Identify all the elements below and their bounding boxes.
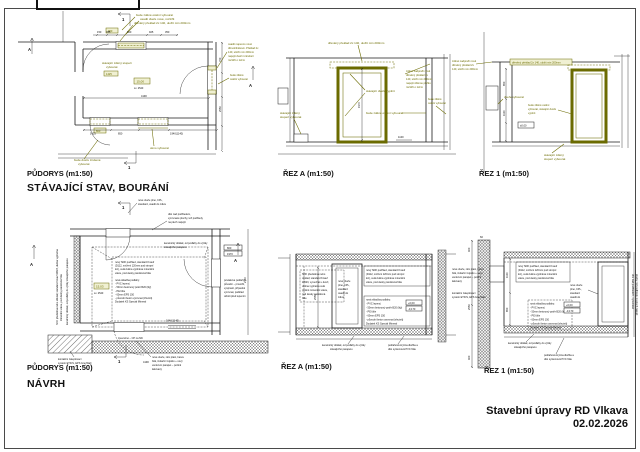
floor-spec-block: nová skladba podlahy: - PVC lepený - 50m… <box>528 300 580 330</box>
svg-text:sv. 2540: sv. 2540 <box>134 87 144 90</box>
svg-text:vatou, pod desky parotěsná fól: vatou, pod desky parotěsná fólie <box>115 272 152 275</box>
svg-text:standard: standard <box>570 292 580 295</box>
svg-text:vyrovnané plochy, též podhledy: vyrovnané plochy, též podhledy <box>168 217 204 220</box>
svg-text:rozšířit o 12cm: rozšířit o 12cm <box>228 58 245 62</box>
svg-text:dřevěný překlad 2x: dřevěný překlad 2x <box>452 63 475 67</box>
svg-text:standard: standard <box>338 288 348 291</box>
svg-text:15,00: 15,00 <box>137 80 145 84</box>
svg-text:- 50mm betonový potěr B20 (lit: - 50mm betonový potěr B20 (litý) <box>115 286 151 289</box>
drawing-sheet: 1 900 bude zděné ostění vybourat osadit … <box>0 0 640 452</box>
svg-text:1970: 1970 <box>227 252 233 256</box>
svg-text:dutina vyplněna celá: dutina vyplněna celá <box>302 285 325 288</box>
svg-text:800: 800 <box>227 246 232 250</box>
svg-text:Dodatek KS Special Mineral: Dodatek KS Special Mineral <box>115 301 147 304</box>
dim-interior: 4190 <box>83 94 210 99</box>
door-new: nové dveře plné, CPL, standard osadit do… <box>332 264 362 328</box>
svg-text:(D112, snížení 120mm pod strop: (D112, snížení 120mm pod stropní <box>366 273 405 276</box>
annotation-right-rotated: dtto nad podhledem, vyrovnané plochy, té… <box>631 274 638 316</box>
svg-text:stupeň vybourat: stupeň vybourat <box>280 115 302 119</box>
svg-text:- původní beton vyrovnat (zhut: - původní beton vyrovnat (zhutnit) <box>530 323 567 326</box>
sdk-block: nový SDK podhled, standard Knauf (D112, … <box>516 262 570 282</box>
heading-proposal: NÁVRH <box>27 378 65 390</box>
svg-text:(D112, snížení 120mm pod strop: (D112, snížení 120mm pod stropní <box>115 265 154 268</box>
annotation-left: zděné nadpraží nově dřevěný překlad 2x 1… <box>452 59 492 71</box>
svg-text:- 50mm betonový potěr B20 (lit: - 50mm betonový potěr B20 (litý) <box>366 307 402 310</box>
drawing-existing-section-a: 1970 dřevěný překlad 2x 140, uložit min … <box>278 30 458 180</box>
svg-text:150: 150 <box>97 30 102 34</box>
svg-text:nové dveře, rám plast, barva: nové dveře, rám plast, barva <box>452 268 484 271</box>
svg-text:±0,00: ±0,00 <box>520 124 527 128</box>
svg-text:kci), celá dutina vyplněna min: kci), celá dutina vyplněna minerální <box>366 277 405 280</box>
svg-text:2550: 2550 <box>218 106 222 112</box>
svg-text:stávající dveře vyplnit: stávající dveře vyplnit <box>366 89 395 93</box>
door-demolition <box>568 65 610 142</box>
svg-text:na plech napojit: na plech napojit <box>168 221 186 224</box>
svg-text:nové dveře, rám plast, barva: nové dveře, rám plast, barva <box>152 356 184 359</box>
svg-text:- 50mm betonový potěr B20 (lit: - 50mm betonový potěr B20 (litý) <box>530 311 566 314</box>
svg-text:400: 400 <box>467 355 471 360</box>
svg-text:SDK předstěna nebo obklad; sta: SDK předstěna nebo obklad; standard Knau… <box>56 249 59 325</box>
svg-text:dtto systémová PVC fólie: dtto systémová PVC fólie <box>388 348 417 351</box>
cut-mark: 1 <box>122 17 125 22</box>
svg-text:vybourat: vybourat <box>78 162 90 166</box>
svg-text:- 60mm EPS 150: - 60mm EPS 150 <box>115 293 135 296</box>
svg-text:osadit do: osadit do <box>570 296 581 299</box>
svg-text:- PE fólie: - PE fólie <box>530 315 541 318</box>
svg-text:bude zděné: bude zděné <box>428 97 442 101</box>
svg-text:keramický obklad, od podlahy d: keramický obklad, od podlahy do výšky <box>164 242 208 245</box>
door-new: nové dveře plné, CPL, standard osadit do <box>570 262 628 326</box>
svg-text:keramický obklad, od podlahy d: keramický obklad, od podlahy do výšky <box>322 344 366 347</box>
dim-chain-right: 750 2550 <box>218 42 223 152</box>
svg-text:nové dveře plné, CPL,: nové dveře plné, CPL, <box>138 199 163 202</box>
svg-text:- PVC lepený: - PVC lepený <box>530 307 545 310</box>
svg-text:venkovní parapet – pozink: venkovní parapet – pozink <box>452 276 482 279</box>
svg-text:350: 350 <box>165 30 170 34</box>
svg-text:140, uložit min 200mm: 140, uložit min 200mm <box>228 50 254 54</box>
svg-text:15,03: 15,03 <box>96 285 104 289</box>
svg-text:+0,00: +0,00 <box>566 303 573 307</box>
svg-text:dtto nad podhledem, vyrovnané: dtto nad podhledem, vyrovnané <box>631 274 634 310</box>
label-section-a-existing: ŘEZ A (m1:50) <box>283 169 334 178</box>
svg-text:původní – prověřit,: původní – prověřit, <box>224 283 245 286</box>
svg-text:podlahová krytina dlažba a: podlahová krytina dlažba a <box>388 344 418 347</box>
svg-text:2140: 2140 <box>243 277 247 283</box>
svg-text:nový SDK podhled, standard Kna: nový SDK podhled, standard Knauf <box>518 265 557 268</box>
svg-text:plné, CPL,: plné, CPL, <box>570 288 582 291</box>
svg-text:-0,170: -0,170 <box>408 307 416 311</box>
svg-text:kci), celá dutina vyplněna min: kci), celá dutina vyplněna minerální <box>518 273 557 276</box>
door-top-demolition: 900 <box>106 28 146 50</box>
svg-text:fólie: fólie <box>302 297 307 300</box>
svg-text:rozšířit o 12cm: rozšířit o 12cm <box>406 85 423 89</box>
svg-text:venkovní parapet – pozink: venkovní parapet – pozink <box>152 364 182 367</box>
label-section-1-proposal: ŘEZ 1 (m1:50) <box>484 366 534 375</box>
svg-text:kontaktní zateplovací: kontaktní zateplovací <box>452 292 476 295</box>
svg-text:ostění vybourat: ostění vybourat <box>428 101 446 105</box>
title-block: Stavební úpravy RD Vlkava 02.02.2026 <box>486 405 628 431</box>
svg-text:1: 1 <box>118 359 121 364</box>
svg-text:1: 1 <box>122 205 125 210</box>
svg-text:sv. 2540: sv. 2540 <box>94 292 104 295</box>
drawing-existing-plan: 1 900 bude zděné ostění vybourat osadit … <box>18 8 273 172</box>
svg-text:A: A <box>234 258 237 263</box>
svg-text:okno vybourat: okno vybourat <box>150 146 169 150</box>
drawing-proposal-plan: 1 nové dveře plné, CPL, standard, osadit… <box>18 195 283 370</box>
svg-text:vyplnit: vyplnit <box>528 111 536 115</box>
svg-text:osadit napevno nové: osadit napevno nové <box>228 42 252 46</box>
svg-text:+0,00: +0,00 <box>408 301 415 305</box>
svg-text:bude zděné: bude zděné <box>230 73 244 77</box>
label-plan-existing: PŮDORYS (m1:50) <box>27 169 93 178</box>
svg-text:750: 750 <box>218 57 222 62</box>
svg-text:standard, osadit do zdiva: standard, osadit do zdiva <box>138 203 166 206</box>
svg-text:- 60mm EPS 150: - 60mm EPS 150 <box>366 315 386 318</box>
dim-chain-left: 850 1100 <box>502 68 507 142</box>
svg-text:60: 60 <box>480 235 483 239</box>
annotation-top: bude zděné ostění vybourat osadit dveře … <box>120 13 191 41</box>
svg-text:1970: 1970 <box>357 102 361 108</box>
svg-text:140, uložit min 200mm: 140, uložit min 200mm <box>452 67 478 71</box>
svg-text:dřevěný překlad 2x: dřevěný překlad 2x <box>406 73 429 77</box>
svg-text:4190: 4190 <box>143 360 149 364</box>
svg-text:850: 850 <box>502 81 506 86</box>
drawing-proposal-section-1: 400 2550 400 60 nové dveře, rám plast, b… <box>452 218 638 396</box>
svg-text:600: 600 <box>127 30 132 34</box>
svg-text:nová skladba podlahy:: nová skladba podlahy: <box>530 303 555 306</box>
svg-text:4190: 4190 <box>141 94 147 98</box>
section-cut-A-left: A <box>28 38 34 54</box>
room-label: 15,03 sv. 2540 <box>94 283 109 295</box>
left-wall-insulated: 400 2550 400 60 <box>467 235 504 368</box>
svg-text:2550: 2550 <box>313 294 317 300</box>
svg-text:850: 850 <box>505 307 509 312</box>
svg-text:plné, CPL,: plné, CPL, <box>338 284 350 287</box>
svg-text:1425: 1425 <box>106 72 112 76</box>
svg-text:keramický obklad, od podlahy d: keramický obklad, od podlahy do výšky <box>508 342 552 345</box>
dim-chain-top: 150 785 600 925 350 <box>93 30 178 36</box>
svg-text:plošně minerální vatou,: plošně minerální vatou, <box>302 289 328 292</box>
svg-text:nový SDK podhled, standard Kna: nový SDK podhled, standard Knauf <box>115 261 154 264</box>
annotations-bottom: keramický obklad, od podlahy do výšky st… <box>508 334 574 361</box>
annotation-right: osadit napevno nové dřevohliníkové. Přek… <box>217 42 259 88</box>
svg-text:- 60mm EPS 150: - 60mm EPS 150 <box>530 319 550 322</box>
svg-text:bílá, izolační trojsklo + nový: bílá, izolační trojsklo + nový <box>152 360 183 363</box>
svg-text:nová skladba podlahy:: nová skladba podlahy: <box>366 299 391 302</box>
svg-text:-0,170: -0,170 <box>566 309 574 313</box>
svg-text:očistit před lepením: očistit před lepením <box>224 295 246 298</box>
svg-text:stupeň vybourat: stupeň vybourat <box>544 157 566 161</box>
svg-text:nová skladba podlahy:: nová skladba podlahy: <box>115 279 140 282</box>
room-label: 15,00 sv. 2540 <box>134 78 150 90</box>
svg-text:bude zděné ostění vybourat: bude zděné ostění vybourat <box>366 111 403 115</box>
svg-text:A: A <box>249 83 252 88</box>
svg-text:vybourat: vybourat <box>106 65 118 69</box>
project-title: Stavební úpravy RD Vlkava <box>486 405 628 418</box>
svg-text:dřevěný překlad 2x 140, uložit: dřevěný překlad 2x 140, uložit min 200mm <box>512 61 561 65</box>
svg-text:stávajícího parapetu: stávajícího parapetu <box>330 348 353 351</box>
svg-text:dřevěný překlad 2x 140, uložit: dřevěný překlad 2x 140, uložit min 200mm <box>134 21 191 25</box>
annotations: dřevěný překlad 2x 140, uložit min 200mm… <box>280 41 446 140</box>
svg-text:vatou, pod desky parotěsná fól: vatou, pod desky parotěsná fólie <box>366 281 403 284</box>
svg-text:800: 800 <box>96 129 101 133</box>
svg-text:zdiva: zdiva <box>338 296 344 299</box>
svg-text:vatou, pod desky parotěsná fól: vatou, pod desky parotěsná fólie <box>518 277 555 280</box>
svg-text:stávajícího parapetu: stávajícího parapetu <box>514 346 537 349</box>
svg-text:zděné nadpraží nově: zděné nadpraží nově <box>452 59 477 63</box>
svg-text:1425: 1425 <box>90 132 96 136</box>
svg-text:plochy, též podhledy, na plech: plochy, též podhledy, na plech napojit <box>635 274 638 316</box>
annotations-top: nové dveře plné, CPL, standard, osadit d… <box>128 199 208 249</box>
door-right-demolition <box>180 66 217 94</box>
svg-text:obklad; standard Knauf: obklad; standard Knauf <box>302 277 328 280</box>
spec-text-block: nový SDK podhled, standard Knauf (D112, … <box>112 257 206 321</box>
svg-text:400: 400 <box>467 247 471 252</box>
svg-text:lakovaný: lakovaný <box>152 368 163 371</box>
svg-text:osadit do: osadit do <box>338 292 349 295</box>
svg-text:dřevohliníkové. Překlad 2x: dřevohliníkové. Překlad 2x <box>228 46 259 50</box>
svg-text:850: 850 <box>118 132 123 136</box>
svg-text:zpevněno – CP na MC: zpevněno – CP na MC <box>118 337 143 340</box>
svg-text:dtto nad podhledem,: dtto nad podhledem, <box>168 213 191 216</box>
lintel-demolition: dřevěný překlad 2x 140, uložit min 200mm <box>510 59 572 65</box>
svg-text:140, uložit min 200mm: 140, uložit min 200mm <box>406 77 432 81</box>
svg-text:A: A <box>30 262 33 267</box>
svg-text:1100: 1100 <box>505 272 509 278</box>
annotation-left-rotated: SDK předstěna nebo obklad; standard Knau… <box>56 249 69 325</box>
svg-text:vyrovnat, podklad: vyrovnat, podklad <box>224 291 244 294</box>
right-spec-blocks: nový SDK podhled, standard Knauf (D112, … <box>364 266 430 326</box>
svg-text:keramický obklad, od podlahy d: keramický obklad, od podlahy do výšky st… <box>66 258 69 325</box>
svg-text:stávajícího parapetu: stávajícího parapetu <box>164 246 187 249</box>
door-top-new <box>106 229 130 261</box>
svg-text:A: A <box>28 47 31 52</box>
drawing-existing-section-1: zděné nadpraží nově dřevěný překlad 2x 1… <box>452 30 632 180</box>
svg-text:minerální vatou, pod desky par: minerální vatou, pod desky parotěsná fól… <box>60 273 63 321</box>
svg-text:- původní beton vyrovnat (zhut: - původní beton vyrovnat (zhutnit) <box>366 319 403 322</box>
svg-text:- PE fólie: - PE fólie <box>366 311 377 314</box>
svg-text:ostění vybourat: ostění vybourat <box>230 77 248 81</box>
svg-text:1100: 1100 <box>502 110 506 116</box>
svg-text:SDK předstěna nebo: SDK předstěna nebo <box>302 273 326 276</box>
svg-text:W623, vynechat u dveří,: W623, vynechat u dveří, <box>302 281 329 284</box>
svg-text:Dodatek KS Special Mineral: Dodatek KS Special Mineral <box>366 323 398 326</box>
svg-text:napojit zděnou příčku: napojit zděnou příčku <box>406 81 431 85</box>
svg-text:925: 925 <box>149 30 154 34</box>
svg-text:systém ETICS, EPS GreyWall: systém ETICS, EPS GreyWall <box>452 296 486 299</box>
annotations: dveře vybourat bude zděné ostění vyboura… <box>498 95 572 161</box>
label-plan-proposal: PŮDORYS (m1:50) <box>27 363 93 372</box>
svg-text:(D112, snížení 120mm pod strop: (D112, snížení 120mm pod stropní <box>518 269 557 272</box>
label-section-1-existing: ŘEZ 1 (m1:50) <box>479 169 529 178</box>
svg-text:1940(1140): 1940(1140) <box>170 132 183 136</box>
svg-text:kontaktní zateplovací: kontaktní zateplovací <box>58 358 82 361</box>
svg-text:dtto systémová PVC fólie: dtto systémová PVC fólie <box>544 358 573 361</box>
svg-text:Dodatek KS Special Mineral: Dodatek KS Special Mineral <box>530 327 562 330</box>
svg-text:- PVC lepený: - PVC lepený <box>115 283 130 286</box>
svg-text:1940(1140): 1940(1140) <box>166 319 179 323</box>
opening-bottom-center-demolition: okno vybourat <box>138 118 169 151</box>
svg-text:1: 1 <box>128 165 131 170</box>
svg-text:- původní beton vyrovnat (zhut: - původní beton vyrovnat (zhutnit) <box>115 297 152 300</box>
heading-existing-state: STÁVAJÍCÍ STAV, BOURÁNÍ <box>27 182 169 194</box>
svg-text:dřevěný překlad 2x 140, uložit: dřevěný překlad 2x 140, uložit min 200mm <box>328 41 385 45</box>
svg-text:vybourat, stávající dveře: vybourat, stávající dveře <box>528 107 557 111</box>
svg-text:kci), celá dutina vyplněna min: kci), celá dutina vyplněna minerální <box>115 268 154 271</box>
project-date: 02.02.2026 <box>486 418 628 431</box>
svg-text:1100: 1100 <box>398 135 404 139</box>
svg-text:podlahová krytina dlažba a: podlahová krytina dlažba a <box>544 354 574 357</box>
svg-text:vyspravit, případně: vyspravit, případně <box>224 287 246 290</box>
drawing-proposal-section-a: SDK předstěna nebo obklad; standard Knau… <box>278 224 458 376</box>
label-section-a-proposal: ŘEZ A (m1:50) <box>281 362 332 371</box>
svg-text:dveře vybourat: dveře vybourat <box>504 95 524 99</box>
svg-text:2550: 2550 <box>467 304 471 310</box>
svg-text:napojit dveřní zárubeň: napojit dveřní zárubeň <box>228 54 254 58</box>
svg-text:bílá, izolační trojsklo + nový: bílá, izolační trojsklo + nový <box>452 272 483 275</box>
svg-text:- PVC lepený: - PVC lepený <box>366 303 381 306</box>
svg-text:785: 785 <box>106 30 111 34</box>
annotations-bottom: keramický obklad, od podlahy do výšky st… <box>322 336 418 351</box>
svg-text:- PE fólie: - PE fólie <box>115 290 126 293</box>
door-demolition: 1970 <box>330 62 394 142</box>
svg-text:nové dveře: nové dveře <box>570 284 583 287</box>
dim-chain-inner: 1100 850 <box>505 258 511 326</box>
svg-text:bude zděné ostění: bude zděné ostění <box>528 103 550 107</box>
svg-text:nové dveře: nové dveře <box>338 280 351 283</box>
svg-text:nový SDK podhled, standard Kna: nový SDK podhled, standard Knauf <box>366 269 405 272</box>
svg-text:lakovaný: lakovaný <box>452 280 463 283</box>
